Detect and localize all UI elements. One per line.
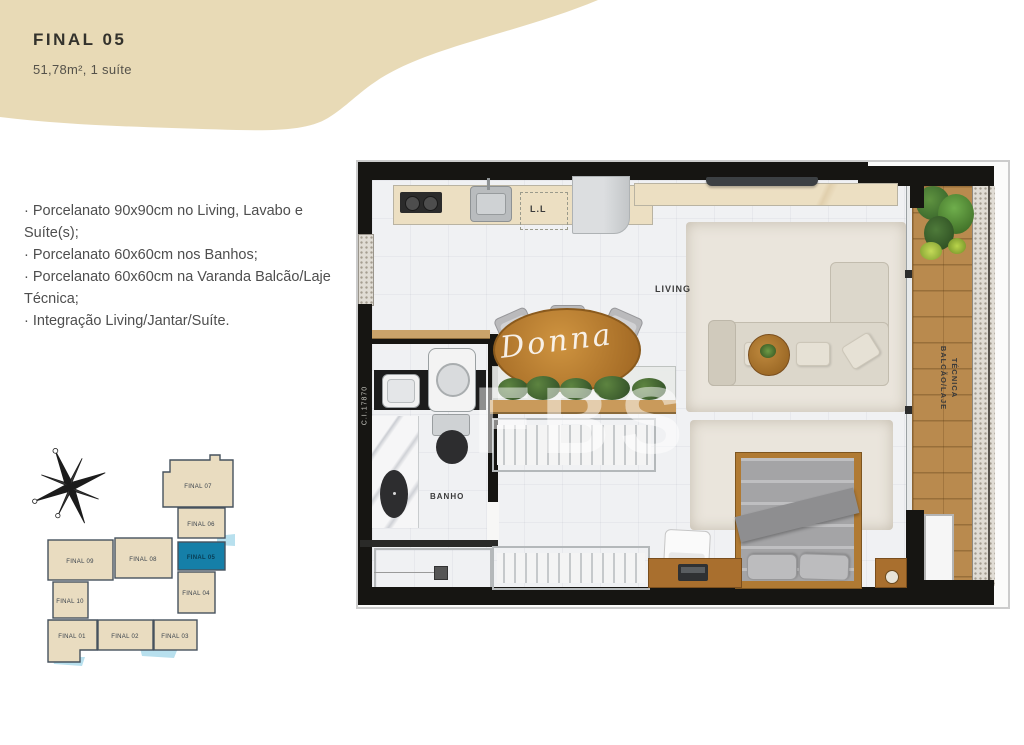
balcony-plant-flowers [948, 238, 966, 254]
entry-leader-line [374, 572, 436, 573]
keyplan-unit-label: FINAL 03 [161, 634, 189, 640]
wall-left-window [358, 234, 374, 306]
bathroom-label: BANHO [430, 492, 464, 501]
keyplan-unit-label: FINAL 04 [182, 591, 210, 597]
wall-bathroom-bottom [360, 540, 498, 547]
keyplan-unit-label: FINAL 02 [111, 634, 139, 640]
keyplan-unit-label: FINAL 01 [58, 634, 86, 640]
technical-equipment-panel [924, 514, 954, 582]
keyplan-unit-label: FINAL 08 [129, 557, 157, 563]
spec-item: · Porcelanato 60x60cm nos Banhos; [24, 244, 354, 266]
floor-plan: TÉCNICA BALCÃO/LAJE C.I.17870 L.L BANHO [356, 160, 1010, 609]
bed-pillow [747, 554, 797, 580]
tv-console [634, 183, 898, 206]
laundry-label: L.L [530, 204, 547, 214]
entry-drain [434, 566, 448, 580]
balcony-plant-flowers [920, 242, 942, 260]
nook-shelf [372, 330, 490, 339]
balcony-label-line2: TÉCNICA [949, 333, 959, 423]
sofa-back [708, 320, 736, 386]
nightstand [875, 558, 907, 588]
kitchen-sink [470, 186, 512, 222]
keyplan-unit-final-07 [163, 455, 233, 507]
unit-area-subtitle: 51,78m², 1 suíte [33, 62, 132, 77]
bathroom-door-opening [487, 502, 499, 540]
toilet-bowl [436, 430, 468, 464]
keyplan-unit-label: FINAL 07 [184, 484, 212, 490]
finish-spec-list: · Porcelanato 90x90cm no Living, Lavabo … [24, 200, 354, 332]
kitchen-faucet [487, 178, 490, 190]
spec-item: · Porcelanato 60x60cm na Varanda Balcão/… [24, 266, 354, 310]
washing-machine [428, 348, 476, 412]
nightstand-decor [885, 570, 899, 584]
balcony-label-line1: BALCÃO/LAJE [938, 333, 948, 423]
tub-drain-dot [393, 492, 396, 495]
balcony-outer-rail [988, 186, 990, 584]
wall-left-upper [358, 162, 372, 234]
wall-balcony-bottom [906, 580, 994, 605]
keyplan-unit-label: FINAL 10 [56, 599, 84, 605]
keyplan-unit-label: FINAL 05 [187, 555, 216, 561]
keyplan-unit-final-01 [48, 620, 97, 662]
registration-number: C.I.17870 [362, 374, 369, 438]
cooktop [400, 192, 442, 213]
tv [706, 177, 818, 186]
vanity-sink [382, 374, 420, 408]
keyplan-unit-label: FINAL 09 [66, 559, 94, 565]
page-title: FINAL 05 [33, 30, 126, 50]
bed-pillow [799, 553, 850, 581]
entry-floor [374, 548, 492, 590]
watermark-letters: FBS [473, 367, 693, 476]
refrigerator [572, 176, 630, 234]
key-plan: FINAL 07 FINAL 06 FINAL 05 FINAL 04 FINA… [40, 450, 240, 675]
spec-item: · Integração Living/Jantar/Suíte. [24, 310, 354, 332]
wardrobe [492, 546, 650, 590]
burner [405, 196, 420, 211]
burner [423, 196, 438, 211]
keyplan-unit-label: FINAL 06 [187, 522, 215, 528]
balcony-outer-ledge [972, 186, 995, 586]
spec-item: · Porcelanato 90x90cm no Living, Lavabo … [24, 200, 354, 244]
wall-notch [910, 186, 924, 208]
living-label: LIVING [655, 284, 691, 294]
coffee-table [748, 334, 790, 376]
sofa-cushion [796, 342, 830, 366]
laptop [678, 564, 708, 581]
wall-left-lower [358, 304, 372, 605]
